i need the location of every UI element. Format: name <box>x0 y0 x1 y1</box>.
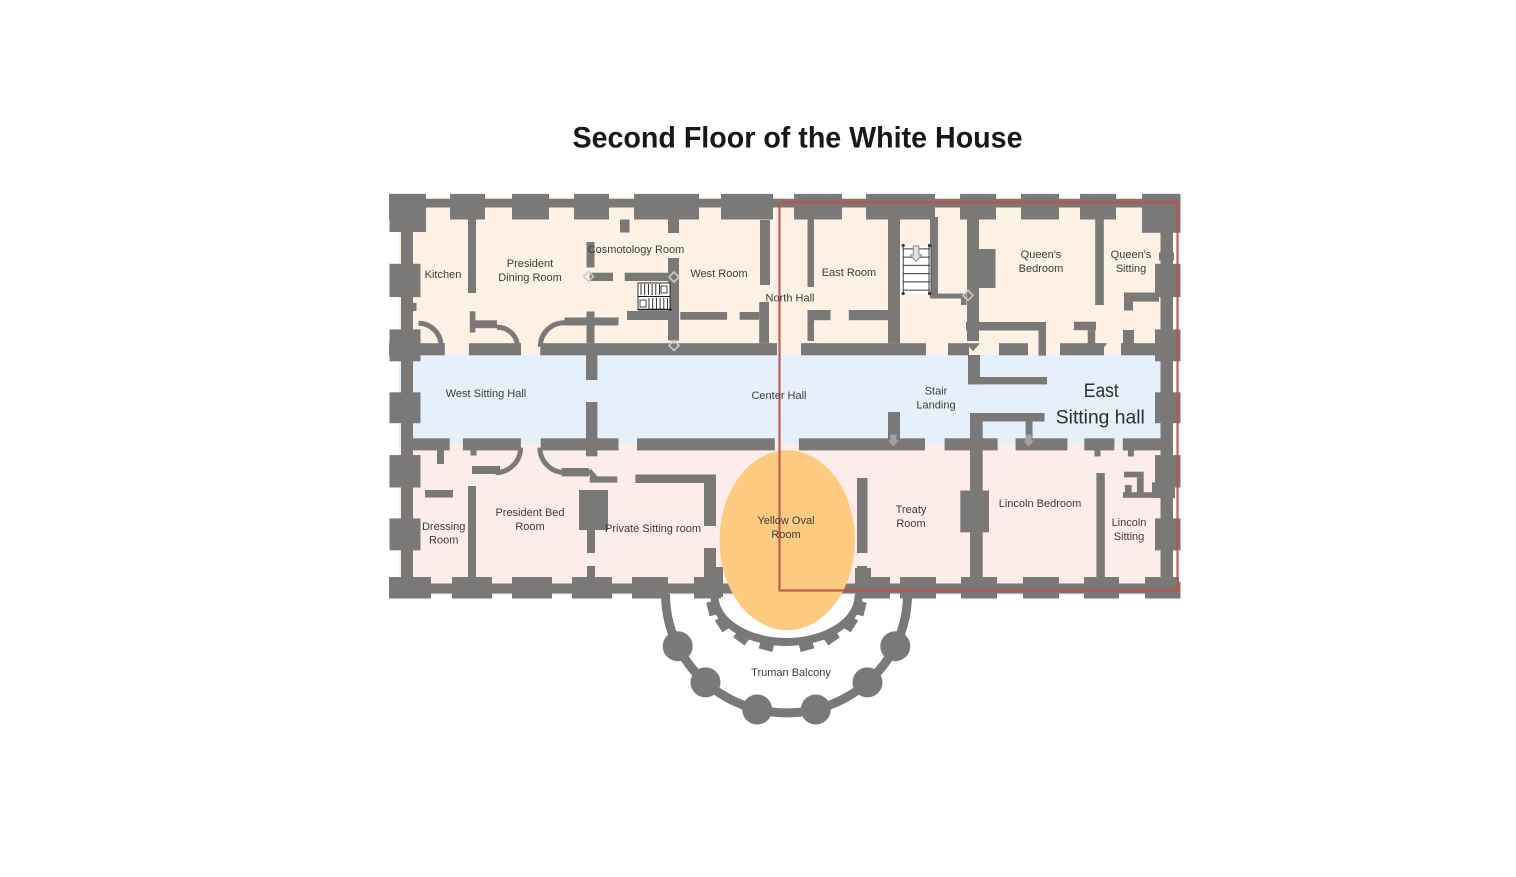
svg-text:Sitting hall: Sitting hall <box>1056 407 1145 429</box>
svg-text:Private Sitting room: Private Sitting room <box>605 523 701 535</box>
svg-text:Landing: Landing <box>916 400 955 412</box>
svg-text:Treaty: Treaty <box>896 504 927 516</box>
svg-text:President: President <box>507 258 553 270</box>
svg-text:Cosmotology Room: Cosmotology Room <box>588 244 685 256</box>
svg-text:Queen's: Queen's <box>1111 249 1152 261</box>
svg-text:West Sitting Hall: West Sitting Hall <box>446 388 527 400</box>
svg-text:Stair: Stair <box>925 386 948 398</box>
svg-text:East Room: East Room <box>822 267 876 279</box>
svg-text:President Bed: President Bed <box>495 507 564 519</box>
svg-text:Dining Room: Dining Room <box>498 272 562 284</box>
svg-text:East: East <box>1084 380 1120 402</box>
svg-text:Room: Room <box>771 529 800 541</box>
svg-text:Room: Room <box>896 518 925 530</box>
svg-text:Lincoln: Lincoln <box>1112 517 1147 529</box>
svg-text:Lincoln Bedroom: Lincoln Bedroom <box>999 498 1082 510</box>
svg-text:Dressing: Dressing <box>422 521 465 533</box>
svg-text:Sitting: Sitting <box>1114 531 1145 543</box>
svg-text:Center Hall: Center Hall <box>751 390 806 402</box>
svg-text:North Hall: North Hall <box>766 293 815 305</box>
svg-text:Yellow Oval: Yellow Oval <box>757 515 814 527</box>
svg-text:Kitchen: Kitchen <box>425 269 462 281</box>
svg-text:West Room: West Room <box>690 268 747 280</box>
svg-text:Queen's: Queen's <box>1021 249 1062 261</box>
svg-text:Room: Room <box>515 521 544 533</box>
svg-text:Sitting: Sitting <box>1116 263 1147 275</box>
svg-text:Bedroom: Bedroom <box>1019 263 1064 275</box>
svg-text:Second Floor of the White Hous: Second Floor of the White House <box>573 122 1023 155</box>
svg-text:Truman Balcony: Truman Balcony <box>751 667 831 679</box>
svg-text:Room: Room <box>429 535 458 547</box>
